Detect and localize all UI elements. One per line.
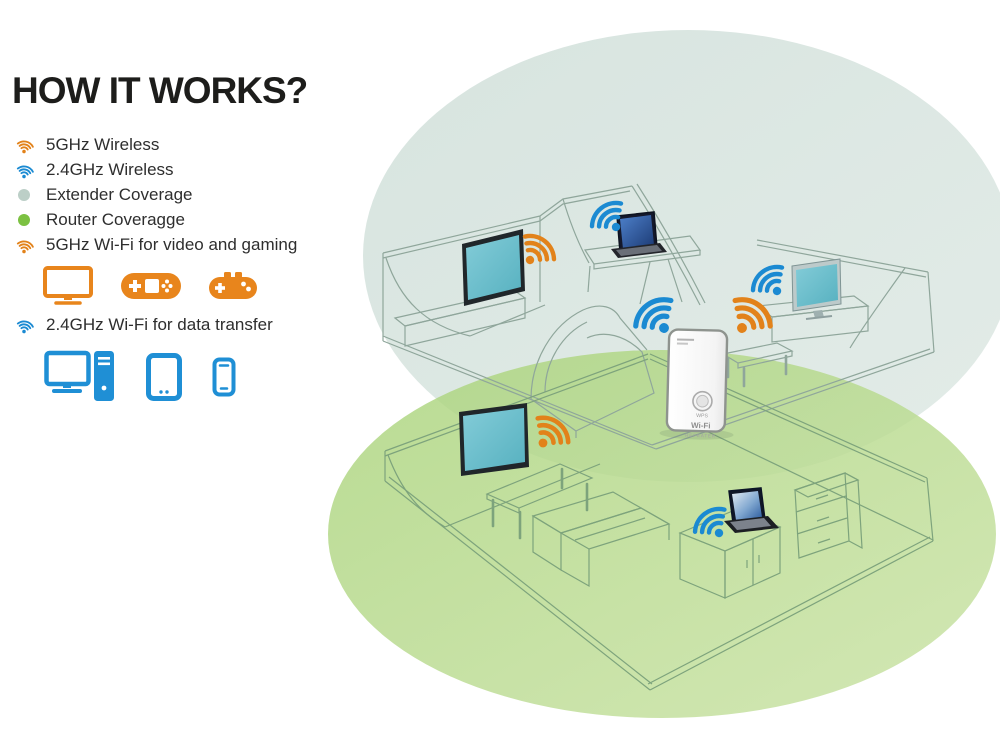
wifi-24ghz-icon <box>12 314 37 336</box>
legend-label: Extender Coverage <box>46 185 192 205</box>
legend-label: 5GHz Wi-Fi for video and gaming <box>46 235 297 255</box>
video-gaming-device-icons <box>42 264 390 308</box>
tv-icon <box>42 265 94 307</box>
wifi-24ghz-icon <box>12 159 37 181</box>
wifi-5ghz-icon <box>12 234 37 256</box>
wifi-label: Wi-Fi <box>691 421 711 431</box>
page-title: HOW IT WORKS? <box>12 70 390 112</box>
repeater-label: REPEATER <box>685 433 716 439</box>
legend-item-router-coverage: Router Coveragge <box>10 207 390 232</box>
gamepad-icon <box>208 268 258 304</box>
smartphone-icon <box>212 357 236 397</box>
wifi-5ghz-icon <box>12 134 37 156</box>
legend-item-5ghz-wireless: 5GHz Wireless <box>10 132 390 157</box>
legend-item-extender-coverage: Extender Coverage <box>10 182 390 207</box>
extender-coverage-dot <box>18 189 30 201</box>
lower-wall-tv <box>459 403 529 476</box>
handheld-game-console-icon <box>120 271 182 301</box>
desktop-computer-icon <box>44 350 116 404</box>
wps-label: WPS <box>696 413 709 419</box>
tablet-icon <box>146 353 182 401</box>
legend-label: Router Coveragge <box>46 210 185 230</box>
data-transfer-device-icons <box>44 350 390 404</box>
wifi-extender: WPS Wi-Fi REPEATER <box>659 329 736 440</box>
legend-label: 2.4GHz Wi-Fi for data transfer <box>46 315 273 335</box>
legend-item-5ghz-video-gaming: 5GHz Wi-Fi for video and gaming <box>10 232 390 257</box>
legend-item-24ghz-wireless: 2.4GHz Wireless <box>10 157 390 182</box>
legend-panel: HOW IT WORKS? 5GHz Wireless 2.4GHz Wirel… <box>10 70 390 404</box>
legend-label: 2.4GHz Wireless <box>46 160 174 180</box>
router-coverage-dot <box>18 214 30 226</box>
legend-item-24ghz-data-transfer: 2.4GHz Wi-Fi for data transfer <box>10 312 390 337</box>
router-coverage-ellipse <box>328 350 996 718</box>
legend-label: 5GHz Wireless <box>46 135 159 155</box>
